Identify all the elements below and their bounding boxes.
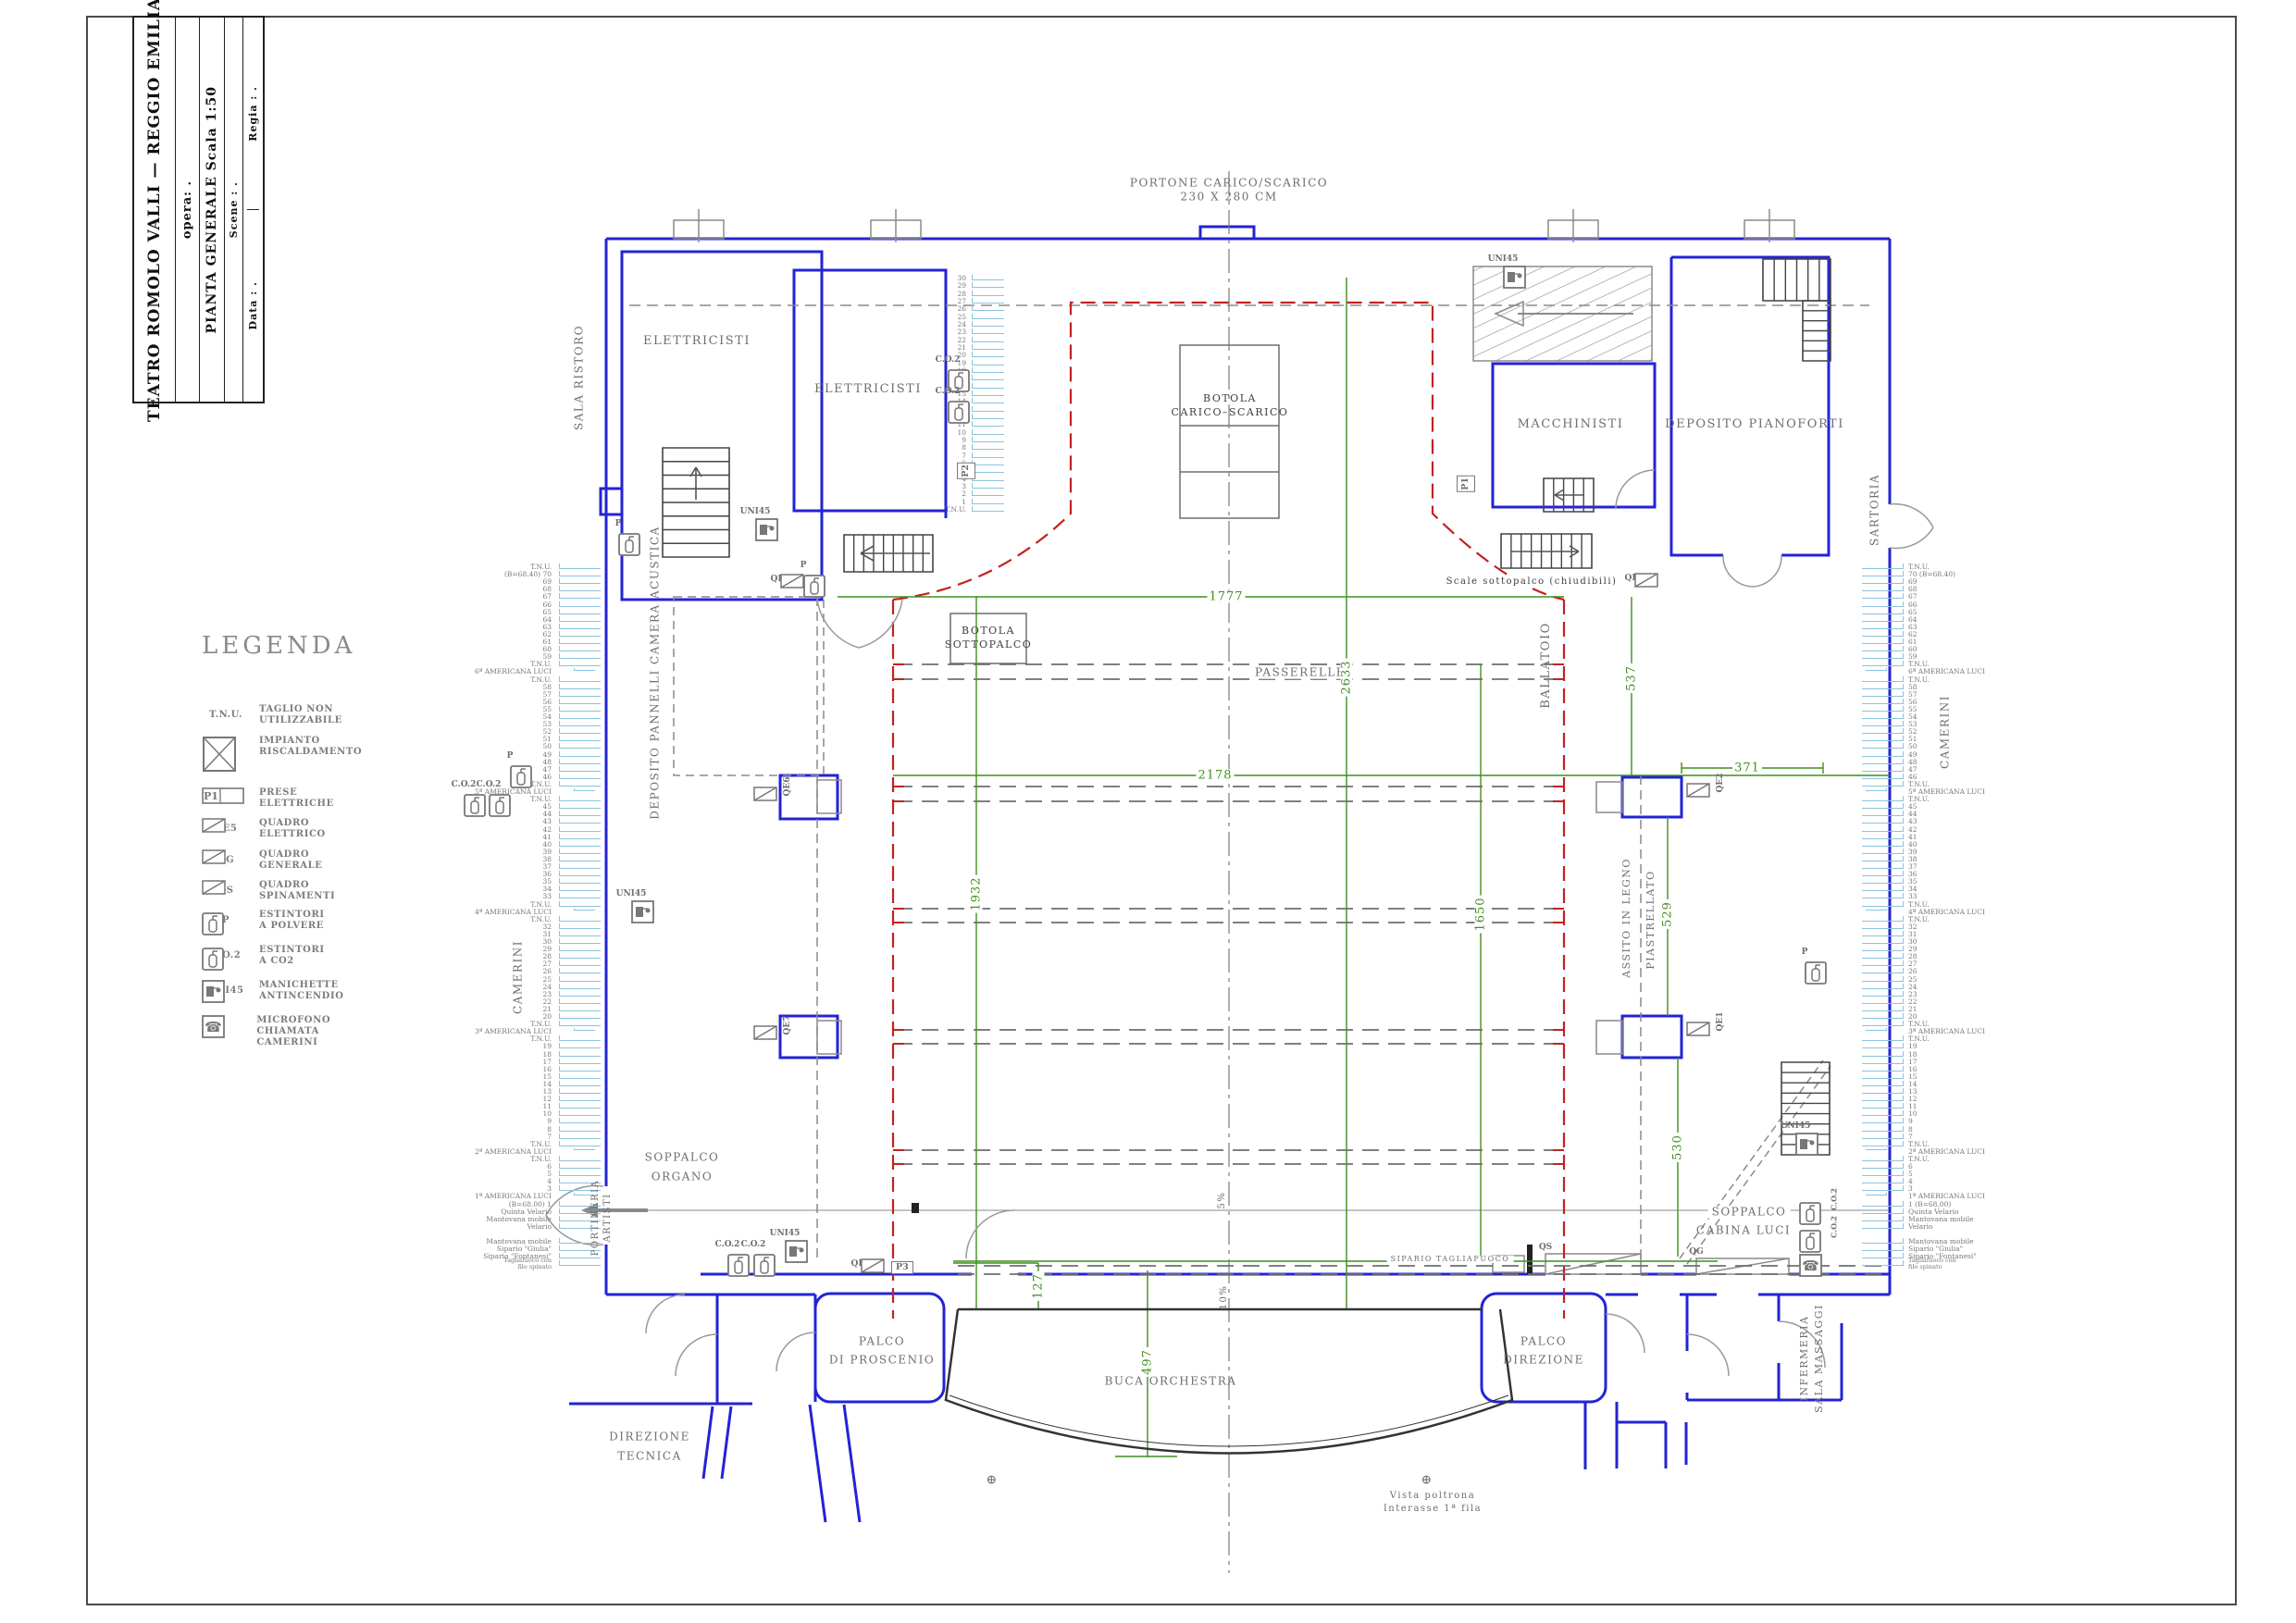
plan-label: INFERMERIA: [1799, 1316, 1810, 1402]
legend-item-label: PRESEELETTRICHE: [250, 787, 334, 810]
door-leaf: [1527, 1245, 1533, 1274]
fly-bar-row: 55: [1908, 706, 2075, 713]
fly-bar-row: 13: [398, 1088, 552, 1096]
fly-bar-row: 54: [398, 713, 552, 721]
fly-bar-tick: [1862, 998, 1904, 1004]
fly-bar-row: 70 (B=68.40): [1908, 571, 2075, 578]
fly-bar-row: 9: [398, 1118, 552, 1125]
plan-label: DEPOSITO PANNELLI CAMERA ACUSTICA: [650, 526, 662, 819]
fly-bar-tick: [559, 616, 601, 622]
fly-bar-row: 51: [398, 736, 552, 743]
fly-bar-tick: [1862, 1081, 1904, 1086]
fly-bar-tick: [559, 601, 601, 607]
fly-bar-separator: 6ª AMERICANA LUCI: [398, 668, 552, 675]
plan-label: ⊕: [986, 1474, 998, 1488]
drawing-title: PIANTA GENERALE Scala 1:50: [205, 86, 219, 333]
fly-bar-tick: [972, 421, 1004, 427]
fly-bar-row: 28: [1908, 953, 2075, 960]
fly-bar-tick: [1862, 960, 1904, 966]
fly-bar-tick: [1862, 653, 1904, 659]
path: [646, 1295, 685, 1333]
fly-bar-tick: [559, 624, 601, 629]
fly-bar-tick: [1862, 968, 1904, 973]
fly-bar-tick: [559, 886, 601, 891]
legend-item: QE5QUADROELETTRICO: [202, 818, 326, 840]
plan-label: DEPOSITO PIANOFORTI: [1665, 418, 1844, 431]
fly-bar-tick: [1862, 609, 1904, 614]
fly-bar-tick: [559, 1059, 601, 1064]
fly-bar-row: 27: [398, 960, 552, 968]
dimension-label: 537: [1626, 663, 1638, 693]
fly-bar-row: T.N.U.: [1908, 901, 2075, 909]
icon-label: C.O.2: [715, 1241, 740, 1249]
fly-bar-tick: [559, 984, 601, 989]
legend-slash-icon: QG: [202, 856, 250, 865]
icon-label: QE1: [1717, 1012, 1725, 1032]
fly-bar-row: 29: [398, 946, 552, 953]
fly-bar-tick: [1862, 564, 1904, 569]
fly-bar-tick: [559, 751, 601, 757]
fly-bar-tick: [972, 452, 1004, 458]
fly-bar-row: 64: [1908, 616, 2075, 624]
plan-label: SOPPALCO: [645, 1152, 720, 1164]
fly-bar-row: 65: [1908, 609, 2075, 616]
fly-bar-tick: [559, 1073, 601, 1079]
fly-bar-row: 60: [398, 646, 552, 653]
fly-bar-row: 51: [1908, 736, 2075, 743]
fly-bar-tick: [559, 1006, 601, 1011]
legend-item-label: IMPIANTORISCALDAMENTO: [250, 736, 362, 758]
fly-bar-tick: [559, 796, 601, 801]
fly-bar-tick: [559, 946, 601, 951]
path: [861, 546, 930, 561]
path: [1606, 1314, 1644, 1353]
fly-bar-tick: [1862, 834, 1904, 839]
fly-bar-row: 21: [1908, 1006, 2075, 1013]
fly-bar-tick: [559, 564, 601, 569]
fly-bar-tick: [1862, 1238, 1904, 1244]
icon-label: C.O.2: [936, 388, 961, 396]
fly-bar-row: 31: [1908, 931, 2075, 938]
fly-bar-row: 21: [398, 1006, 552, 1013]
fly-bar-row: 1 (B=68.00): [1908, 1201, 2075, 1208]
fly-bar-tick: [1862, 759, 1904, 764]
fly-bar-tick: [559, 991, 601, 997]
fly-bar-tick: [559, 766, 601, 772]
fly-bar-tick: [559, 1171, 601, 1176]
fly-bar-row: 12: [1908, 1096, 2075, 1103]
fly-bar-tick: [559, 1035, 601, 1041]
dimension-label: 529: [1662, 899, 1674, 929]
fly-bar-tick: [1862, 638, 1904, 644]
fly-bar-tick: [1862, 661, 1904, 666]
icon-label: C.O.2: [1830, 1188, 1838, 1210]
fly-bar-tick: [1862, 1163, 1904, 1169]
plan-label: DIREZIONE: [609, 1431, 690, 1443]
fly-bar-row: 43: [398, 818, 552, 825]
fly-bar-tick: [559, 856, 601, 861]
fly-bar-row: 26: [398, 968, 552, 975]
icon-label: P: [507, 752, 514, 761]
fly-bar-row: 25: [398, 976, 552, 984]
fly-bar-row: 67: [1908, 593, 2075, 601]
fly-bar-row: 38: [1908, 856, 2075, 863]
fly-bar-tick: [1866, 1148, 1887, 1151]
fly-bar-tick: [559, 713, 601, 719]
fly-bar-tick: [559, 699, 601, 704]
path: [859, 600, 902, 648]
plan-label: BALLATOIO: [1540, 622, 1553, 709]
fly-bar-row: 29: [1908, 946, 2075, 953]
fly-bar-tick: [1862, 586, 1904, 591]
plan-label: SARTORIA: [1869, 474, 1881, 546]
icon-label: UNI45: [1488, 255, 1519, 264]
fly-bar-tick: [972, 344, 1004, 350]
fly-bar-tick: [1866, 1193, 1887, 1196]
fly-bar-row: 24: [398, 984, 552, 991]
fly-bar-tick: [559, 653, 601, 659]
fly-bar-row: Velario: [398, 1223, 552, 1231]
plan-label: PALCO: [859, 1336, 905, 1348]
dimension-label: 2633: [1341, 658, 1353, 696]
fly-bar-row: 32: [398, 923, 552, 931]
fly-bar-row: 52: [398, 728, 552, 736]
fly-bar-tick: [1862, 1126, 1904, 1132]
fly-bar-tick: [972, 305, 1004, 311]
fly-bar-tick: [1862, 1021, 1904, 1026]
fly-bar-tick: [1862, 1096, 1904, 1101]
fly-bar-row: 41: [1908, 834, 2075, 841]
fly-bar-row: 40: [1908, 841, 2075, 849]
fly-bar-tick: [972, 499, 1004, 504]
fly-bar-row: 6: [398, 1163, 552, 1171]
fly-bar-row: 58: [1908, 684, 2075, 691]
fly-bar-row: 62: [398, 631, 552, 638]
fly-bar-tick: [1862, 1103, 1904, 1109]
fly-bar-tick: [972, 321, 1004, 327]
fly-bar-tick: [1862, 1073, 1904, 1079]
fly-bar-tick: [559, 901, 601, 907]
scene-label: Scene : .: [228, 181, 240, 238]
fly-bar-tick: [972, 375, 1004, 380]
fly-bar-tick: [1866, 668, 1887, 671]
fly-bar-tick: [559, 759, 601, 764]
fly-bar-tick: [559, 1163, 601, 1169]
plan-label: SOTTOPALCO: [945, 639, 1033, 650]
fly-bar-tick: [972, 337, 1004, 342]
fly-bar-row: 3: [912, 483, 966, 490]
regia-cell: Regia : .: [247, 18, 259, 210]
fly-bar-tick: [1862, 1208, 1904, 1214]
fly-bar-tick: [1862, 886, 1904, 891]
icon-socket: P3: [891, 1261, 913, 1274]
title-block-regia-data-cell: Regia : . Data : .: [243, 18, 263, 402]
fly-bar-tick: [972, 476, 1004, 481]
fly-bar-row: T.N.U.: [1908, 1156, 2075, 1163]
legend-tnu-symbol: T.N.U.: [202, 711, 250, 720]
legend-item: QGQUADROGENERALE: [202, 849, 322, 872]
fly-bar-tick: [559, 706, 601, 712]
fly-bar-tick: [559, 676, 601, 682]
fly-bar-tick: [1862, 931, 1904, 936]
legend: LEGENDA T.N.U.TAGLIO NONUTILIZZABILEIMPI…: [202, 632, 378, 660]
title-block-theatre-cell: TEATRO ROMOLO VALLI — REGGIO EMILIA: [134, 18, 176, 402]
fly-bar-row: (B=68.40) 70: [398, 571, 552, 578]
fly-bar-row: 56: [398, 699, 552, 706]
plan-label: PORTONE CARICO/SCARICO: [1130, 178, 1328, 190]
fly-bar-tick: [559, 1066, 601, 1072]
icon-label: P: [615, 520, 622, 528]
fly-bar-tick: [559, 1043, 601, 1048]
plan-label: ARTISTI: [603, 1193, 614, 1242]
fly-bar-tick: [559, 1141, 601, 1146]
fly-bar-tick: [1862, 984, 1904, 989]
fly-bar-separator: 2ª AMERICANA LUCI: [1908, 1148, 2075, 1156]
fly-bar-tick: [1862, 1066, 1904, 1072]
fly-bar-row: 26: [912, 305, 966, 313]
path: [1687, 1334, 1729, 1376]
fly-bar-row: 50: [1908, 743, 2075, 750]
fly-bar-row: 17: [398, 1059, 552, 1066]
plan-label: DIREZIONE: [1503, 1355, 1584, 1367]
path: [1723, 555, 1753, 587]
fly-bar-tick: [559, 571, 601, 576]
fly-bar-row: 30: [398, 938, 552, 946]
fly-bar-tick: [1862, 1260, 1904, 1266]
fly-bar-row: 7: [1908, 1134, 2075, 1141]
fly-bar-tick: [972, 460, 1004, 465]
fly-bar-tick: [559, 774, 601, 779]
fly-bar-row: T.N.U.: [1908, 676, 2075, 684]
fly-bar-tick: [1862, 1253, 1904, 1258]
plan-label: DI PROSCENIO: [829, 1355, 935, 1367]
fly-bar-row: Tagliafuoco confilo spinato: [1908, 1258, 2075, 1270]
dimension-label: 1932: [971, 874, 983, 912]
icon-label: C.O.2: [477, 781, 502, 789]
plan-label: MACCHINISTI: [1518, 418, 1624, 431]
fly-bar-tick: [972, 298, 1004, 304]
fly-bar-tick: [1866, 909, 1887, 911]
fly-bar-tick: [559, 586, 601, 591]
fly-bar-row: 66: [1908, 601, 2075, 609]
fly-bar-tick: [1862, 1216, 1904, 1221]
title-block-scene-cell: Scene : .: [225, 18, 242, 402]
fly-bar-tick: [559, 1103, 601, 1109]
fly-bar-row: 32: [1908, 923, 2075, 931]
fly-bar-tick: [972, 275, 1004, 280]
icon-label: UNI45: [770, 1230, 800, 1238]
fly-bar-tick: [1862, 878, 1904, 884]
plan-label: 10%: [1220, 1285, 1230, 1310]
title-block-drawing-cell: PIANTA GENERALE Scala 1:50: [200, 18, 225, 402]
path: [1555, 489, 1584, 501]
fly-bar-row: T.N.U.: [398, 901, 552, 909]
plan-label: ASSITO IN LEGNO: [1621, 858, 1632, 978]
fly-bar-row: 33: [398, 893, 552, 900]
fly-bar-row: T.N.U.: [398, 1156, 552, 1163]
legend-item: T.N.U.TAGLIO NONUTILIZZABILE: [202, 704, 342, 726]
plan-label: PALCO: [1520, 1336, 1567, 1348]
plan-label: PIASTRELLATO: [1645, 870, 1657, 969]
fly-bar-tick: [1862, 751, 1904, 757]
fly-bar-tick: [559, 931, 601, 936]
fly-bar-tick: [1862, 946, 1904, 951]
fly-bar-tick: [972, 506, 1004, 512]
fly-bar-row: 69: [1908, 578, 2075, 586]
fly-bar-tick: [1866, 1028, 1887, 1031]
fly-bar-tick: [1862, 706, 1904, 712]
dimension-label: 2178: [1196, 770, 1234, 782]
fly-bar-row: 61: [398, 638, 552, 646]
fly-bar-row: 22: [398, 998, 552, 1006]
dimension-label: 127: [1033, 1271, 1045, 1301]
fly-bar-row: 22: [1908, 998, 2075, 1006]
icon-label: UNI45: [1781, 1122, 1811, 1131]
legend-item: UNI45MANICHETTEANTINCENDIO: [202, 980, 344, 1002]
fly-bar-tick: [559, 803, 601, 809]
fly-bar-tick: [972, 314, 1004, 319]
legend-item-label: MICROFONOCHIAMATA CAMERINI: [247, 1015, 378, 1048]
fly-bar-separator: 3ª AMERICANA LUCI: [1908, 1028, 2075, 1035]
fly-bar-row: 48: [1908, 759, 2075, 766]
fly-bar-tick: [1862, 863, 1904, 869]
fly-bar-row: 65: [398, 609, 552, 616]
fly-bar-row: 63: [398, 624, 552, 631]
fly-bar-tick: [559, 998, 601, 1004]
fly-bar-row: 55: [398, 706, 552, 713]
fly-bar-tick: [1862, 849, 1904, 854]
icon-label: QE2: [1717, 774, 1725, 793]
path: [1616, 470, 1655, 509]
title-block-opera-cell: opera: .: [176, 18, 200, 402]
fly-bar-row: 62: [1908, 631, 2075, 638]
fly-bar-tick: [559, 1088, 601, 1094]
socket-label: P1: [1457, 476, 1475, 492]
fly-bar-tick: [1862, 811, 1904, 816]
fly-bar-row: Quinta Velario: [1908, 1208, 2075, 1216]
fly-bar-row: 18: [398, 1051, 552, 1059]
fly-bar-separator: 6ª AMERICANA LUCI: [1908, 668, 2075, 675]
fly-bar-row: 56: [1908, 699, 2075, 706]
fly-bar-tick: [972, 490, 1004, 496]
fly-bar-separator: 4ª AMERICANA LUCI: [398, 909, 552, 916]
legend-item-label: QUADROSPINAMENTI: [250, 880, 335, 902]
fly-bar-row: T.N.U.: [1908, 916, 2075, 923]
fly-bar-tick: [559, 938, 601, 944]
fly-bar-row: 42: [1908, 826, 2075, 834]
fly-bar-tick: [972, 352, 1004, 357]
fly-bar-row: 13: [1908, 1088, 2075, 1096]
legend-item-label: ESTINTORIA POLVERE: [250, 910, 325, 932]
fly-bar-row: T.N.U.: [398, 916, 552, 923]
fly-bar-row: 19: [398, 1043, 552, 1050]
fly-bar-row: 14: [398, 1081, 552, 1088]
fly-bar-row: 6: [1908, 1163, 2075, 1171]
fly-bar-row: 29: [912, 282, 966, 290]
fly-bar-tick: [972, 383, 1004, 389]
plan-label: BOTOLA: [1203, 393, 1257, 404]
fly-bar-row: 30: [1908, 938, 2075, 946]
fly-bar-tick: [1862, 1156, 1904, 1161]
fly-bar-tick: [972, 367, 1004, 373]
fly-bar-tick: [1862, 646, 1904, 651]
fly-bar-tick: [559, 728, 601, 734]
fly-bar-tick: [1862, 1051, 1904, 1057]
fly-bar-tick: [559, 1051, 601, 1057]
fly-bar-row: 54: [1908, 713, 2075, 721]
fly-bar-tick: [1862, 1043, 1904, 1048]
fly-bar-row: 10: [912, 429, 966, 437]
fly-bar-tick: [972, 360, 1004, 365]
legend-item-label: QUADROELETTRICO: [250, 818, 326, 840]
fly-bar-row: 16: [398, 1066, 552, 1073]
fly-bar-tick: [1862, 901, 1904, 907]
fly-bar-tick: [559, 863, 601, 869]
fly-bar-row: 69: [398, 578, 552, 586]
fly-bar-row: 61: [1908, 638, 2075, 646]
fly-bar-tick: [1862, 571, 1904, 576]
data-label: Data : .: [247, 281, 259, 329]
fly-bar-row: 17: [1908, 1059, 2075, 1066]
fly-bar-row: 20: [398, 1013, 552, 1021]
dimension-label: 1650: [1475, 895, 1487, 933]
fly-bar-tick: [559, 893, 601, 898]
fly-bar-tick: [1862, 781, 1904, 787]
fly-bar-tick: [559, 1260, 601, 1266]
fly-bar-row: 68: [398, 586, 552, 593]
path: [690, 467, 701, 500]
fly-bar-tick: [1862, 624, 1904, 629]
path: [966, 1210, 1014, 1258]
fly-bar-row: 36: [1908, 871, 2075, 878]
fly-bar-tick: [1862, 684, 1904, 689]
opera-label: opera: .: [180, 180, 194, 239]
fly-bar-tick: [559, 968, 601, 973]
regia-label: Regia : .: [247, 86, 259, 142]
fly-bar-row: 14: [1908, 1081, 2075, 1088]
fly-bar-tick: [559, 646, 601, 651]
plan-label: TECNICA: [617, 1451, 682, 1463]
fly-bar-row: 1: [912, 499, 966, 506]
legend-item-label: TAGLIO NONUTILIZZABILE: [250, 704, 342, 726]
fly-bar-row: 31: [398, 931, 552, 938]
fly-bar-row: 66: [398, 601, 552, 609]
fly-bar-row: T.N.U.: [1908, 796, 2075, 803]
fly-bar-tick: [1862, 953, 1904, 959]
fly-bar-tick: [559, 878, 601, 884]
icon-label: QE7: [784, 1016, 792, 1035]
fly-bar-row: 35: [1908, 878, 2075, 886]
fly-bar-row: 67: [398, 593, 552, 601]
fly-bar-tick: [972, 414, 1004, 419]
fly-bar-tick: [972, 483, 1004, 489]
legend-item: P1PRESEELETTRICHE: [202, 787, 334, 810]
fly-bar-tick: [1862, 593, 1904, 599]
fly-bar-tick: [1862, 1223, 1904, 1229]
fly-bar-row: 45: [1908, 803, 2075, 811]
plan-label: ELETTRICISTI: [643, 335, 751, 348]
fly-bar-tick: [559, 1126, 601, 1132]
fly-bar-tick: [1862, 721, 1904, 726]
legend-uni45-icon: UNI45: [202, 986, 250, 996]
fly-bar-row: 53: [398, 721, 552, 728]
fly-bar-row: 34: [1908, 886, 2075, 893]
plan-label: 230 X 280 CM: [1180, 192, 1277, 204]
fly-bar-tick: [559, 638, 601, 644]
fly-bar-row: Tagliafuoco confilo spinato: [398, 1258, 552, 1270]
fly-bar-row: 44: [1908, 811, 2075, 818]
fly-bar-row: Quinta Velario: [398, 1208, 552, 1216]
